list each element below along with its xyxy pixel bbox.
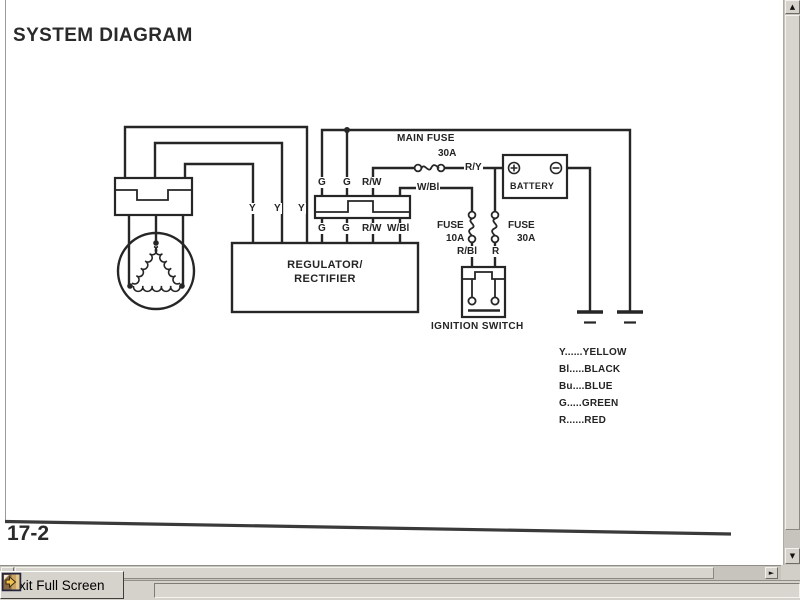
legend-row: Bl.....BLACK	[559, 361, 627, 378]
fuse-10a-rating: 10A	[445, 233, 465, 244]
exit-fullscreen-label: Exit Full Screen	[10, 578, 105, 593]
alternator-connector-box	[115, 178, 192, 215]
main-fuse-symbol	[415, 165, 445, 172]
vertical-scrollbar[interactable]: ▲ ▼	[783, 0, 800, 565]
scrollbar-corner	[781, 565, 800, 580]
battery-minus-terminal	[551, 163, 562, 174]
wire-label-r: R	[491, 246, 500, 257]
wire-label-rbl: R/Bl	[456, 246, 478, 257]
fuse-30a-label: FUSE	[507, 220, 536, 231]
fuse-10a-label: FUSE	[436, 220, 465, 231]
scroll-right-button[interactable]: ►	[765, 567, 778, 579]
fuse-30a-symbol	[492, 212, 499, 243]
legend-row: R......RED	[559, 412, 627, 429]
ground-symbols	[577, 312, 643, 323]
page-number: 17-2	[7, 522, 49, 546]
wire-label-y-3: Y	[297, 203, 306, 214]
wire-y2	[155, 143, 282, 243]
main-fuse-label: MAIN FUSE	[396, 133, 456, 144]
exit-fullscreen-button[interactable]: Exit Full Screen	[0, 571, 124, 599]
vertical-scrollbar-thumb[interactable]	[785, 15, 800, 530]
fuse-30a-rating: 30A	[516, 233, 536, 244]
regulator-label: REGULATOR/ RECTIFIER	[232, 258, 418, 286]
exit-fullscreen-icon	[1, 572, 22, 592]
stator-coils	[132, 247, 180, 292]
legend-row: G.....GREEN	[559, 395, 627, 412]
regulator-connector-box	[315, 196, 410, 218]
main-fuse-rating: 30A	[437, 148, 457, 159]
wire-label-wbl-bot: W/Bl	[386, 223, 410, 234]
acrobat-fullscreen-window: SYSTEM DIAGRAM	[0, 0, 800, 600]
wire-label-rw-bot: R/W	[361, 223, 382, 234]
wire-label-y-2: Y	[273, 203, 282, 214]
wire-color-legend: Y......YELLOW Bl.....BLACK Bu....BLUE G.…	[559, 344, 627, 429]
scroll-up-button[interactable]: ▲	[785, 0, 800, 14]
regulator-connector-key	[315, 201, 410, 212]
battery-plus-terminal	[509, 163, 520, 174]
wire-label-ry: R/Y	[464, 162, 483, 173]
wire-label-g-bot-2: G	[341, 223, 351, 234]
wire-label-rw-top: R/W	[361, 177, 382, 188]
ignition-switch-key	[462, 272, 505, 279]
wire-y3	[185, 164, 253, 243]
scroll-up-icon: ▲	[790, 4, 795, 11]
wire-label-g-top-2: G	[342, 177, 352, 188]
wire-batt-ground	[567, 168, 590, 311]
scroll-right-icon: ►	[769, 570, 774, 577]
legend-row: Y......YELLOW	[559, 344, 627, 361]
scroll-down-icon: ▼	[790, 553, 795, 560]
footer-rule	[5, 522, 731, 535]
wire-label-g-top-1: G	[317, 177, 327, 188]
wire-label-g-bot-1: G	[317, 223, 327, 234]
alternator-connector-key	[115, 190, 192, 200]
status-bar-field	[154, 583, 800, 598]
ignition-switch-stems	[472, 279, 495, 297]
wire-label-y-1: Y	[248, 203, 257, 214]
wire-label-wbl: W/Bl	[416, 182, 440, 193]
battery-label: BATTERY	[509, 181, 555, 192]
document-page: SYSTEM DIAGRAM	[0, 0, 784, 565]
fuse-10a-symbol	[469, 212, 476, 243]
wire-y1	[125, 127, 307, 243]
ignition-switch-label: IGNITION SWITCH	[430, 321, 525, 332]
legend-row: Bu....BLUE	[559, 378, 627, 395]
scroll-down-button[interactable]: ▼	[785, 548, 800, 564]
